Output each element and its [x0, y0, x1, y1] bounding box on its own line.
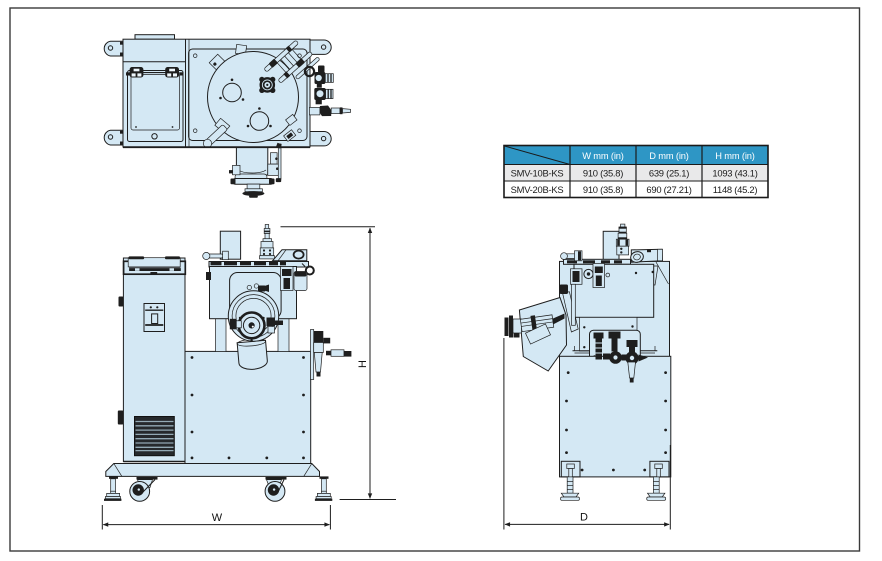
- svg-text:D mm (in): D mm (in): [649, 151, 689, 161]
- svg-text:W: W: [212, 512, 223, 524]
- svg-text:SMV-10B-KS: SMV-10B-KS: [511, 168, 564, 179]
- svg-text:910 (35.8): 910 (35.8): [583, 184, 623, 195]
- svg-text:D: D: [580, 512, 588, 524]
- svg-text:1093 (43.1): 1093 (43.1): [712, 168, 757, 179]
- svg-text:H mm (in): H mm (in): [715, 151, 755, 161]
- svg-text:910 (35.8): 910 (35.8): [583, 168, 623, 179]
- svg-text:1148 (45.2): 1148 (45.2): [713, 184, 758, 195]
- svg-text:W mm (in): W mm (in): [582, 151, 624, 161]
- svg-text:SMV-20B-KS: SMV-20B-KS: [511, 184, 564, 195]
- svg-text:639 (25.1): 639 (25.1): [649, 168, 689, 179]
- svg-text:H: H: [357, 360, 369, 368]
- svg-text:690 (27.21): 690 (27.21): [646, 184, 691, 195]
